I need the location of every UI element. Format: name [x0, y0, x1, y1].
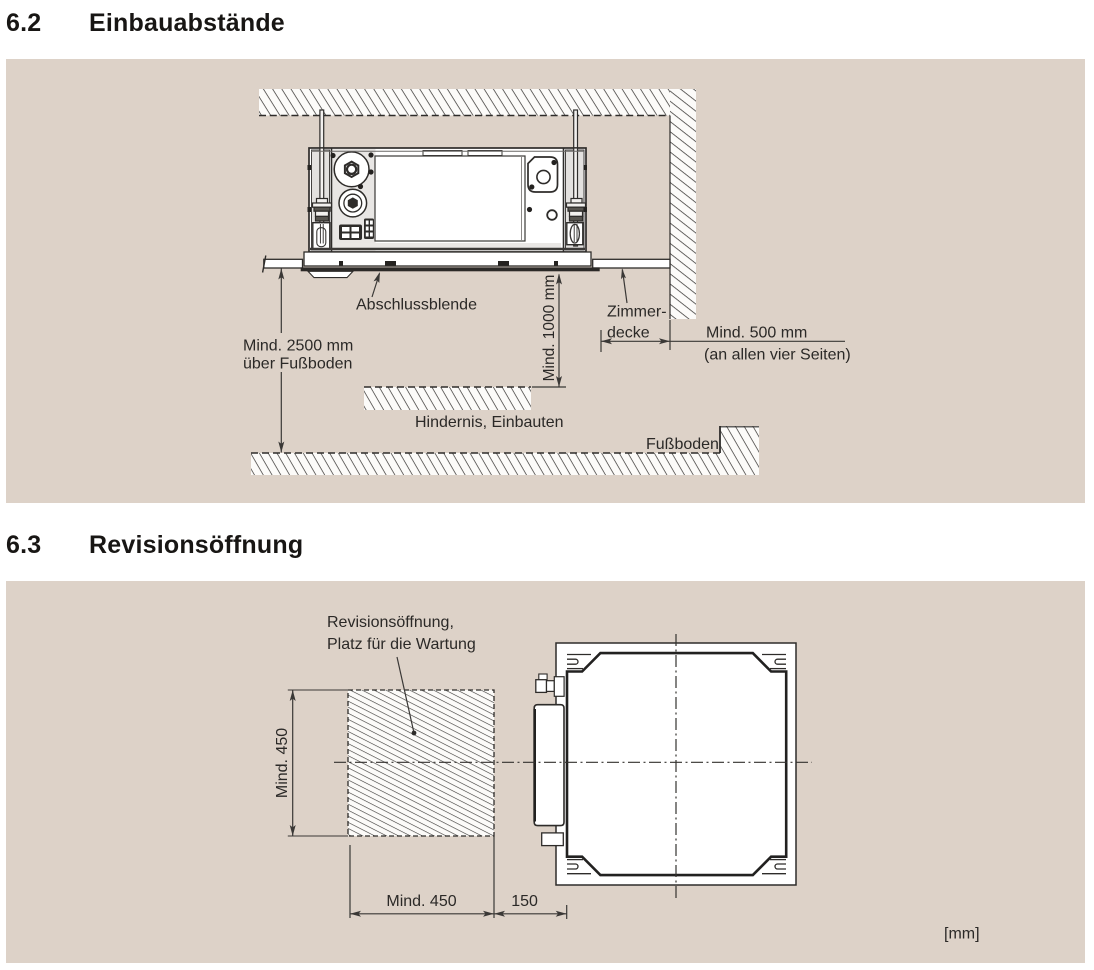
svg-text:über Fußboden: über Fußboden	[243, 356, 352, 373]
svg-text:Mind. 2500 mm: Mind. 2500 mm	[243, 338, 353, 355]
svg-text:decke: decke	[607, 325, 650, 342]
svg-text:Fußboden: Fußboden	[646, 436, 719, 453]
svg-text:[mm]: [mm]	[944, 926, 980, 943]
svg-text:Mind. 1000 mm: Mind. 1000 mm	[541, 275, 558, 382]
svg-text:Mind. 500 mm: Mind. 500 mm	[706, 325, 807, 342]
svg-text:Hindernis, Einbauten: Hindernis, Einbauten	[415, 414, 564, 431]
svg-text:Platz für die Wartung: Platz für die Wartung	[327, 636, 476, 653]
svg-text:Mind. 450: Mind. 450	[386, 893, 456, 910]
svg-text:Revisionsöffnung,: Revisionsöffnung,	[327, 614, 454, 631]
svg-text:150: 150	[511, 893, 538, 910]
svg-text:(an allen vier Seiten): (an allen vier Seiten)	[704, 347, 851, 364]
svg-text:Abschlussblende: Abschlussblende	[356, 297, 477, 314]
svg-text:Mind. 450: Mind. 450	[274, 728, 291, 798]
svg-text:Zimmer-: Zimmer-	[607, 304, 667, 321]
